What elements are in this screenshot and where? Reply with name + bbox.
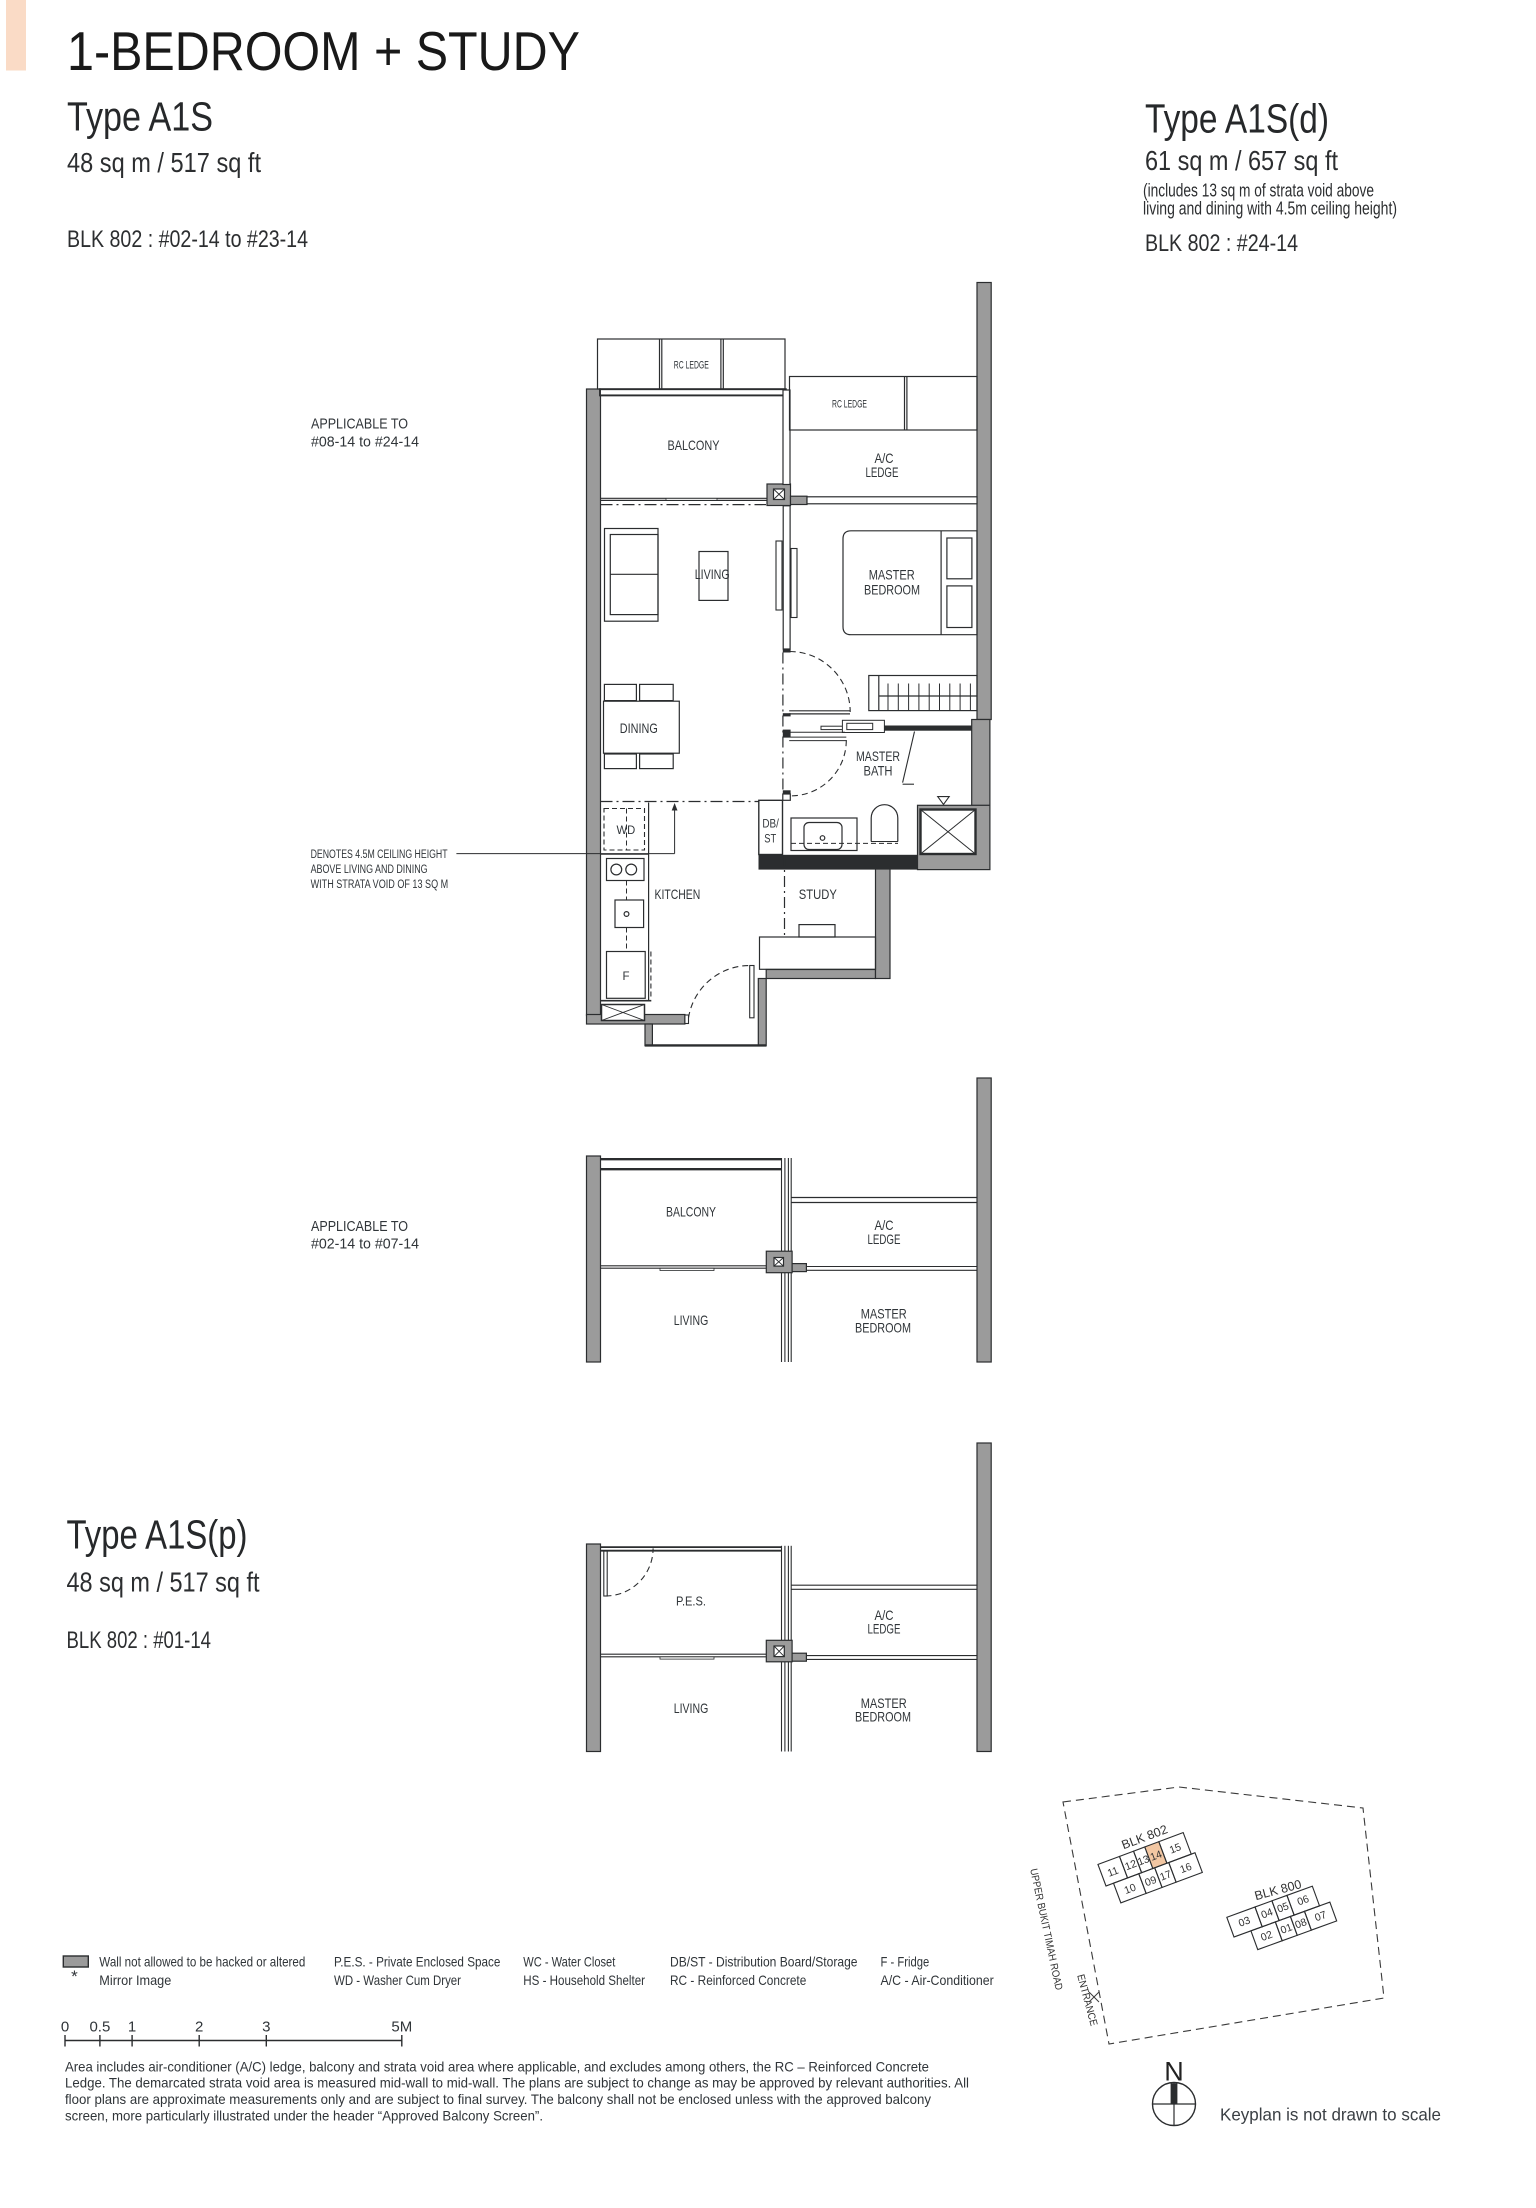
svg-text:3: 3 [262,2019,270,2036]
svg-text:WC - Water Closet: WC - Water Closet [523,1954,615,1970]
svg-text:ABOVE LIVING AND DINING: ABOVE LIVING AND DINING [311,864,428,876]
svg-text:DB/ST - Distribution Board/Sto: DB/ST - Distribution Board/Storage [670,1954,858,1970]
svg-text:RC LEDGE: RC LEDGE [674,360,709,372]
svg-text:APPLICABLE TO: APPLICABLE TO [311,416,408,433]
svg-text:STUDY: STUDY [799,886,838,902]
svg-text:P.E.S.: P.E.S. [676,1594,706,1609]
svg-text:Type A1S: Type A1S [67,94,213,140]
svg-text:MASTER: MASTER [869,567,915,583]
svg-text:RC - Reinforced Concrete: RC - Reinforced Concrete [670,1972,806,1988]
svg-text:DB/: DB/ [762,819,779,831]
svg-text:Keyplan is not drawn to scale: Keyplan is not drawn to scale [1220,2105,1441,2125]
svg-text:BLK 802 : #24-14: BLK 802 : #24-14 [1145,230,1298,257]
svg-text:(includes 13 sq m of strata vo: (includes 13 sq m of strata void above [1143,181,1374,201]
svg-text:floor plans are approximate me: floor plans are approximate measurements… [65,2091,931,2107]
svg-text:LIVING: LIVING [695,566,730,582]
svg-text:2: 2 [195,2019,203,2036]
svg-text:F: F [622,971,629,983]
svg-text:LEDGE: LEDGE [868,1231,901,1247]
svg-text:Type A1S(p): Type A1S(p) [67,1512,248,1558]
svg-text:living and dining with 4.5m ce: living and dining with 4.5m ceiling heig… [1143,199,1397,219]
svg-text:BLK 802 : #01-14: BLK 802 : #01-14 [67,1627,212,1654]
svg-text:0: 0 [61,2019,69,2036]
svg-text:Area includes air-conditioner: Area includes air-conditioner (A/C) ledg… [65,2058,929,2074]
svg-text:1: 1 [128,2019,136,2036]
svg-text:5M: 5M [391,2019,412,2036]
svg-text:Mirror Image: Mirror Image [99,1972,171,1988]
svg-text:N: N [1164,2057,1184,2087]
svg-text:48 sq m / 517 sq ft: 48 sq m / 517 sq ft [67,1567,260,1598]
svg-text:P.E.S. - Private Enclosed Spac: P.E.S. - Private Enclosed Space [334,1954,501,1970]
svg-text:WD: WD [617,825,636,837]
svg-text:WD - Washer Cum Dryer: WD - Washer Cum Dryer [334,1972,461,1988]
svg-text:RC LEDGE: RC LEDGE [832,399,867,411]
svg-text:*: * [71,1967,78,1986]
svg-text:BALCONY: BALCONY [666,1204,716,1220]
svg-text:F - Fridge: F - Fridge [881,1954,930,1970]
svg-text:0.5: 0.5 [89,2019,110,2036]
svg-text:61 sq m / 657 sq ft: 61 sq m / 657 sq ft [1145,145,1338,176]
svg-text:A/C - Air-Conditioner: A/C - Air-Conditioner [881,1972,994,1988]
svg-text:BLK 802 : #02-14 to #23-14: BLK 802 : #02-14 to #23-14 [67,226,308,253]
svg-text:Ledge. The demarcated strata v: Ledge. The demarcated strata void area i… [65,2075,969,2091]
svg-text:BEDROOM: BEDROOM [864,582,920,598]
svg-text:1-BEDROOM + STUDY: 1-BEDROOM + STUDY [67,20,580,82]
svg-text:BEDROOM: BEDROOM [855,1320,911,1336]
svg-text:HS - Household Shelter: HS - Household Shelter [523,1972,645,1988]
svg-text:DINING: DINING [620,720,658,736]
svg-text:APPLICABLE TO: APPLICABLE TO [311,1218,408,1235]
svg-text:screen, more particularly illu: screen, more particularly illustrated un… [65,2108,543,2124]
svg-text:#02-14 to #07-14: #02-14 to #07-14 [311,1236,419,1253]
svg-text:BEDROOM: BEDROOM [855,1709,911,1725]
svg-text:LIVING: LIVING [674,1700,709,1716]
svg-text:ST: ST [764,834,776,846]
svg-text:48 sq m / 517 sq ft: 48 sq m / 517 sq ft [67,147,261,178]
svg-text:LEDGE: LEDGE [868,1621,901,1637]
svg-text:BATH: BATH [864,763,893,779]
svg-text:LIVING: LIVING [674,1312,709,1328]
svg-text:BALCONY: BALCONY [668,437,721,453]
svg-text:LEDGE: LEDGE [866,464,899,480]
svg-text:KITCHEN: KITCHEN [655,886,701,902]
svg-text:Wall not allowed to be hacked: Wall not allowed to be hacked or altered [99,1954,305,1970]
svg-text:WITH STRATA VOID OF 13 SQ M: WITH STRATA VOID OF 13 SQ M [311,879,449,891]
svg-text:#08-14 to #24-14: #08-14 to #24-14 [311,434,419,451]
svg-text:DENOTES 4.5M CEILING HEIGHT: DENOTES 4.5M CEILING HEIGHT [311,849,448,861]
svg-text:Type A1S(d): Type A1S(d) [1145,96,1329,142]
